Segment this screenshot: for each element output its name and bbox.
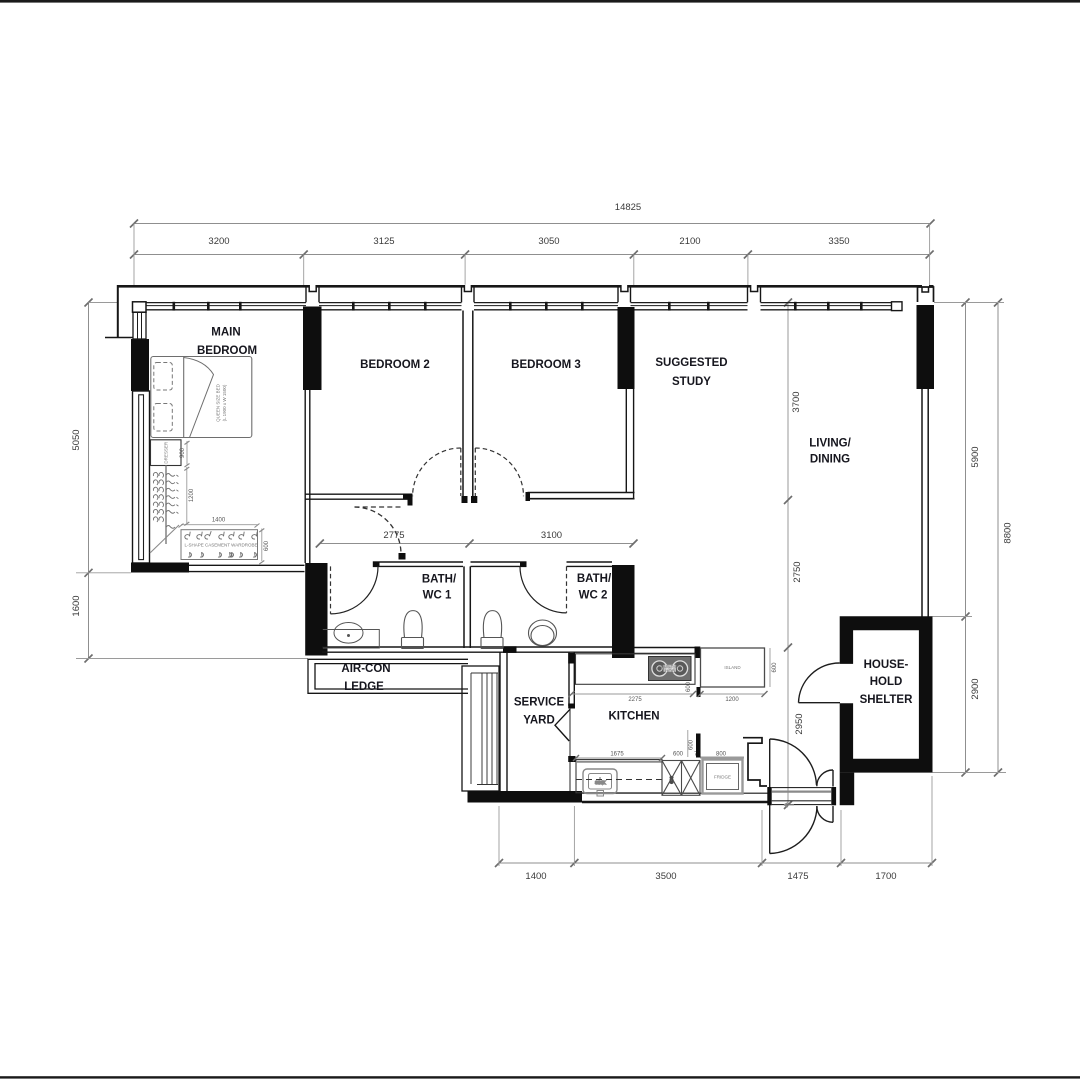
svg-text:1700: 1700 (875, 871, 896, 882)
svg-text:WC 1: WC 1 (423, 590, 452, 602)
svg-text:HOB: HOB (665, 669, 675, 674)
svg-text:YARD: YARD (523, 715, 555, 727)
svg-text:2750: 2750 (792, 561, 803, 582)
svg-text:900: 900 (180, 447, 186, 458)
svg-text:3500: 3500 (655, 871, 676, 882)
svg-text:2275: 2275 (628, 697, 642, 703)
svg-text:FRIDGE: FRIDGE (714, 775, 731, 780)
svg-text:1600: 1600 (71, 595, 82, 616)
svg-text:SINK: SINK (595, 780, 606, 785)
svg-text:14825: 14825 (615, 202, 641, 213)
svg-text:BEDROOM 2: BEDROOM 2 (360, 359, 430, 371)
svg-text:2100: 2100 (679, 236, 700, 247)
svg-text:L-SHAPE CASEMENT WARDROBE: L-SHAPE CASEMENT WARDROBE (184, 543, 257, 548)
svg-text:SUGGESTED: SUGGESTED (655, 357, 727, 369)
svg-text:3350: 3350 (828, 236, 849, 247)
svg-text:600: 600 (264, 540, 270, 551)
svg-text:WC 2: WC 2 (579, 590, 608, 602)
svg-text:5050: 5050 (71, 429, 82, 450)
svg-text:(L 1900 x W 1500): (L 1900 x W 1500) (222, 384, 227, 421)
svg-text:DINING: DINING (810, 454, 850, 466)
svg-text:BATH/: BATH/ (422, 574, 457, 586)
svg-text:BEDROOM: BEDROOM (197, 345, 257, 357)
svg-text:2775: 2775 (383, 530, 404, 541)
svg-text:SHELTER: SHELTER (860, 694, 914, 706)
svg-text:3125: 3125 (373, 236, 394, 247)
svg-text:8800: 8800 (1003, 522, 1014, 543)
svg-text:3700: 3700 (791, 391, 802, 412)
svg-text:1475: 1475 (787, 871, 808, 882)
svg-text:LEDGE: LEDGE (344, 681, 384, 693)
svg-text:HOUSE-: HOUSE- (864, 659, 909, 671)
svg-text:600: 600 (772, 662, 778, 673)
svg-text:SERVICE: SERVICE (514, 697, 565, 709)
svg-text:QUEEN SIZE BED: QUEEN SIZE BED (216, 383, 221, 422)
svg-text:DRESSER: DRESSER (164, 441, 169, 464)
svg-text:1400: 1400 (525, 871, 546, 882)
svg-text:1200: 1200 (189, 488, 195, 502)
svg-text:BEDROOM 3: BEDROOM 3 (511, 359, 581, 371)
svg-text:1200: 1200 (725, 697, 739, 703)
svg-text:LIVING/: LIVING/ (809, 438, 851, 450)
svg-text:600: 600 (686, 681, 692, 692)
svg-text:600: 600 (669, 776, 674, 784)
svg-text:KITCHEN: KITCHEN (608, 711, 659, 723)
svg-text:STUDY: STUDY (672, 376, 711, 388)
svg-text:BATH/: BATH/ (577, 573, 612, 585)
svg-text:HOLD: HOLD (870, 676, 903, 688)
svg-text:2900: 2900 (970, 678, 981, 699)
svg-text:ISLAND: ISLAND (724, 665, 741, 670)
svg-text:5900: 5900 (970, 446, 981, 467)
svg-text:3200: 3200 (208, 236, 229, 247)
svg-text:AIR-CON: AIR-CON (341, 663, 390, 675)
svg-text:1400: 1400 (212, 518, 226, 524)
svg-text:3100: 3100 (541, 530, 562, 541)
svg-text:600: 600 (673, 752, 684, 758)
svg-text:MAIN: MAIN (211, 327, 240, 339)
svg-text:3050: 3050 (538, 236, 559, 247)
svg-text:600: 600 (689, 739, 695, 750)
svg-text:1675: 1675 (610, 752, 624, 758)
svg-text:2950: 2950 (794, 713, 805, 734)
